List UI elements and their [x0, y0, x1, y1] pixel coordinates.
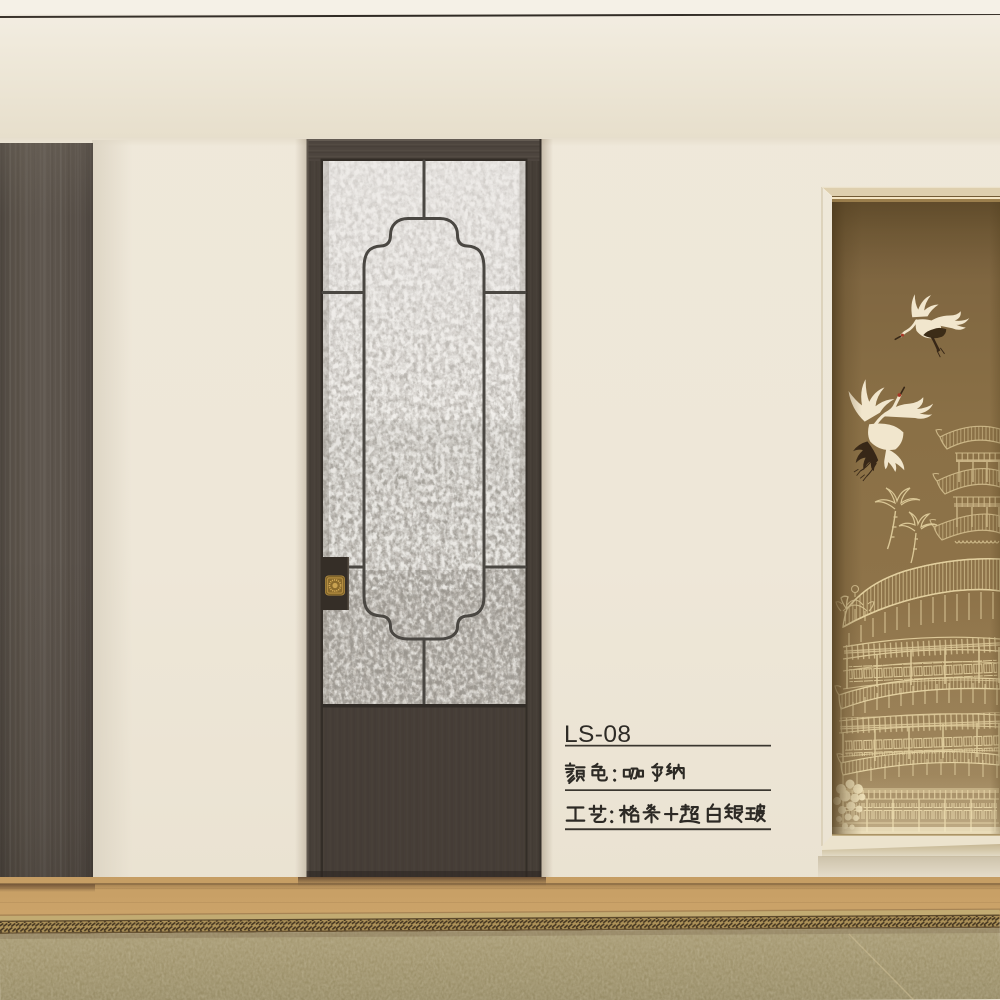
- svg-text:LS-08: LS-08: [564, 721, 631, 748]
